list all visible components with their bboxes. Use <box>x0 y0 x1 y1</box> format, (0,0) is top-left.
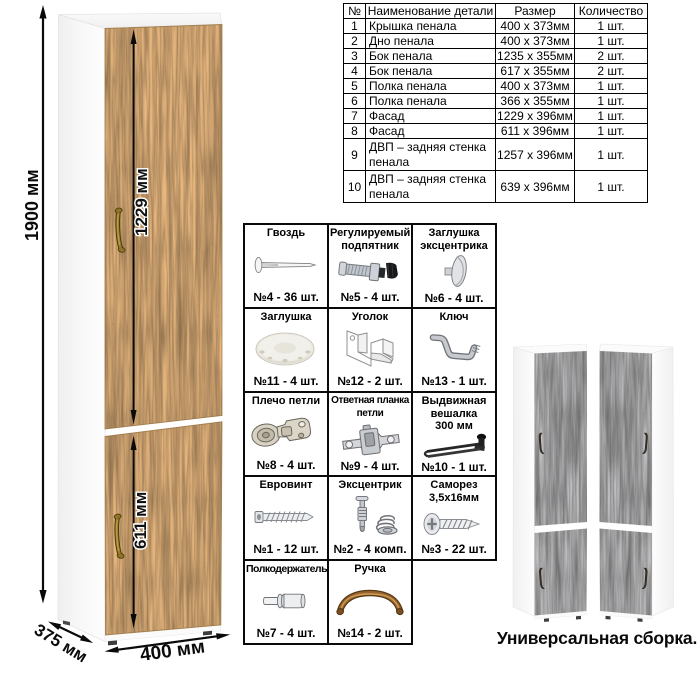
svg-text:1229 мм: 1229 мм <box>132 168 151 236</box>
svg-text:1900 мм: 1900 мм <box>22 169 42 241</box>
svg-text:611 мм: 611 мм <box>131 492 150 549</box>
svg-text:400 мм: 400 мм <box>139 636 206 666</box>
